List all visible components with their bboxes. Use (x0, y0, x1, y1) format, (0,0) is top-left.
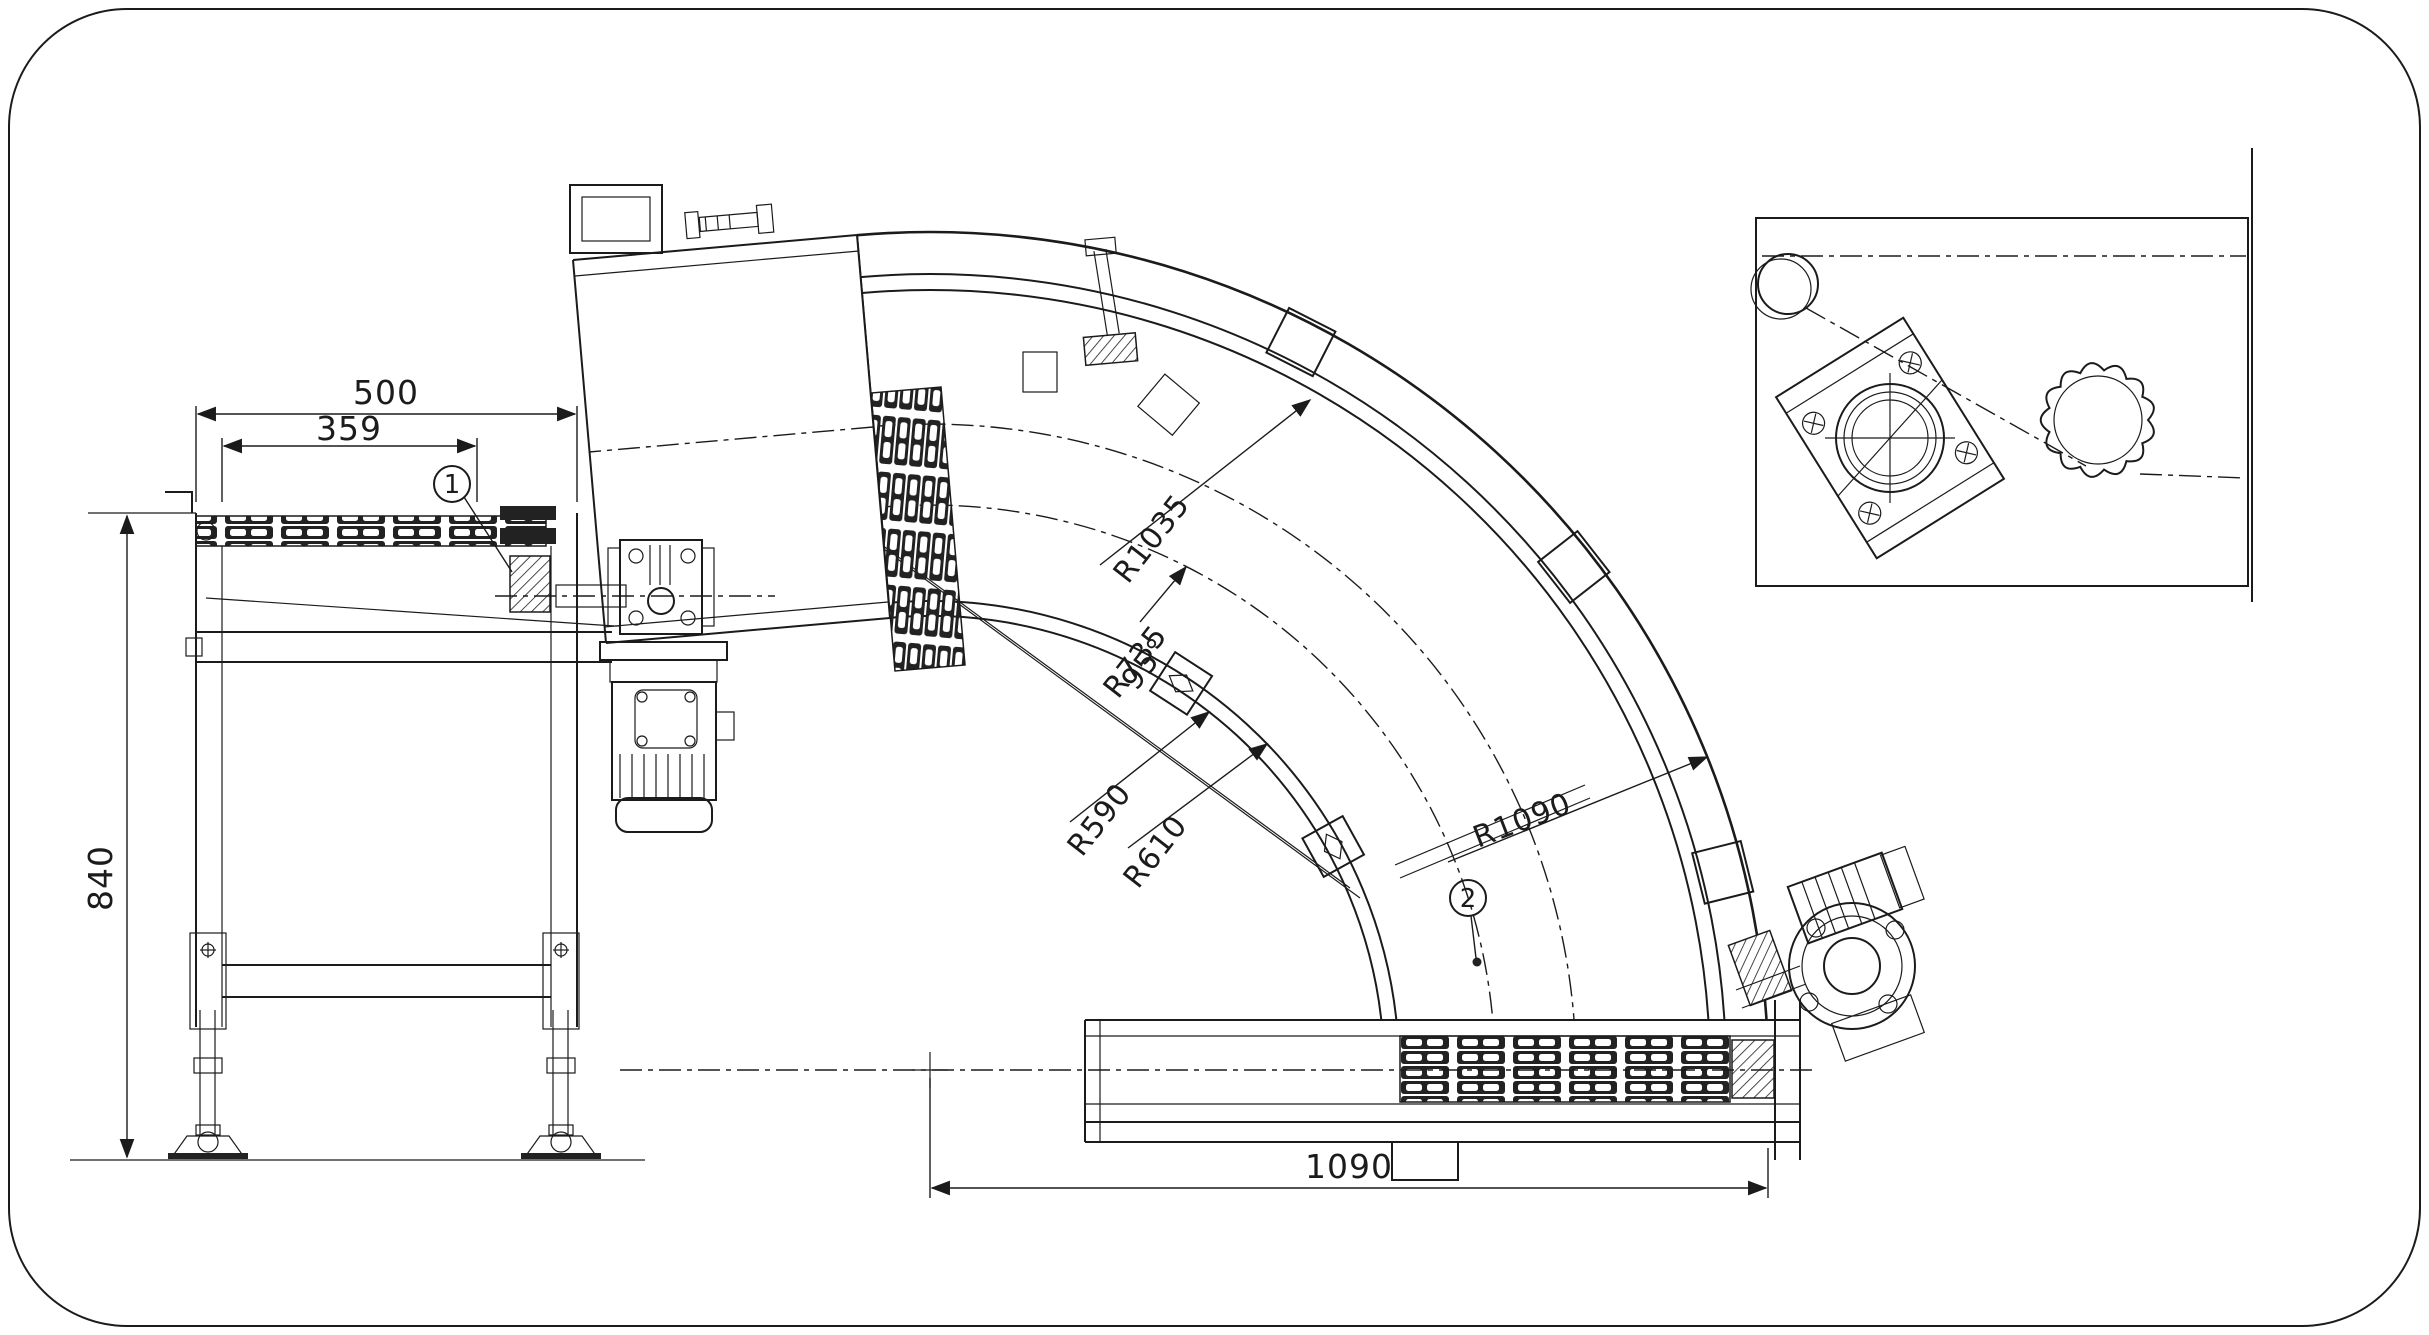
plan-view-curve: R1035 R735 95° R590 R610 R1090 2 1090 (570, 185, 1925, 1198)
label-r610: R610 (1117, 809, 1195, 895)
return-chain-line (206, 598, 614, 626)
rail-bolt (186, 638, 202, 656)
tensioner-bolt (685, 204, 774, 239)
mid-arc-centerline (874, 424, 1576, 1070)
gearbox-flange (1789, 903, 1915, 1029)
outfeed-chain-band (1400, 1036, 1730, 1102)
motor-end-cap (616, 798, 712, 832)
side-dimensions: 500 359 840 1 (81, 373, 577, 1157)
infeed-section (570, 185, 1199, 671)
leader-r735 (1140, 567, 1186, 622)
drive-bearing (510, 556, 550, 612)
dim-500: 500 (353, 373, 419, 412)
infeed-end-box-inner (582, 197, 650, 241)
guide-bracket (1138, 374, 1199, 435)
drive-sprocket-block (1732, 1040, 1774, 1098)
conveyor-drawing: R1035 R735 95° R590 R610 R1090 2 1090 (0, 0, 2429, 1335)
outfeed-end-box (1392, 1142, 1458, 1180)
balloon-2-label: 2 (1460, 884, 1477, 914)
drawing-sheet: R1035 R735 95° R590 R610 R1090 2 1090 (0, 0, 2429, 1335)
outfeed-section (1085, 1000, 1800, 1180)
detail-sprocket-root (2054, 376, 2142, 464)
dim-840: 840 (81, 845, 120, 911)
detail-centerline-lower (2140, 474, 2246, 478)
dim-359: 359 (316, 409, 382, 448)
drive-shaft-bearing (1728, 930, 1791, 1005)
bolt-mark (1318, 829, 1349, 863)
guide-bracket (1023, 352, 1057, 392)
detail-sprocket (2041, 363, 2154, 477)
gearbox-input-bore (1824, 938, 1880, 994)
outer-frame-arc (857, 232, 1768, 1070)
left-end-bracket (165, 492, 192, 513)
label-r1035: R1035 (1107, 488, 1198, 590)
infeed-chain-band (871, 387, 965, 671)
motor (600, 642, 734, 832)
outer-chain-guide-arc (862, 290, 1710, 1070)
balloon-1-label: 1 (444, 470, 461, 500)
balloon-2-anchor (1473, 958, 1482, 967)
dim-1090: 1090 (1305, 1147, 1393, 1186)
label-r1090: R1090 (1468, 786, 1576, 855)
left-foot (168, 1010, 248, 1159)
outer-chain-arc (861, 274, 1726, 1070)
pitch-arc-centerline (881, 505, 1495, 1070)
outer-bracket (1538, 531, 1609, 603)
detail-view (1751, 148, 2252, 602)
infeed-end-box (570, 185, 662, 253)
side-chain-band (196, 516, 546, 546)
right-foot (521, 1010, 601, 1159)
detail-frame (1756, 218, 2248, 586)
motor-junction-box (716, 712, 734, 740)
